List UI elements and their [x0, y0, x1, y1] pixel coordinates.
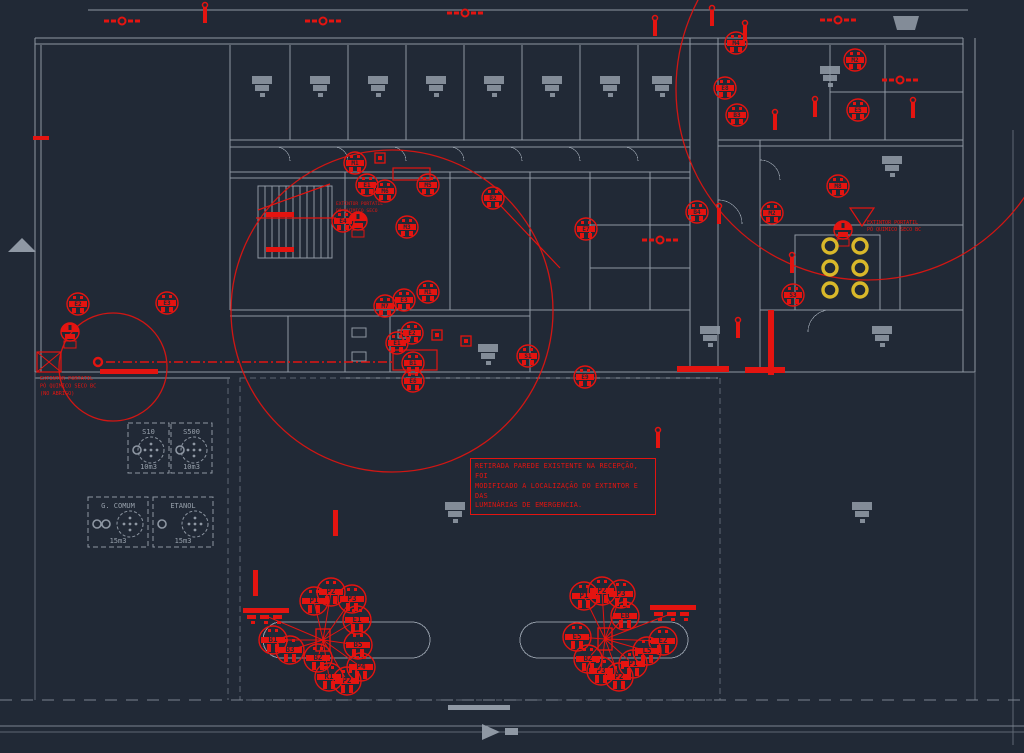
red-leader-line	[258, 184, 330, 210]
symbol-tag-label: E4	[339, 218, 347, 225]
revision-note-line: MODIFICADO A LOCALIZAÇÃO DO EXTINTOR E D…	[475, 482, 651, 502]
note-text-line: EXTINTOR PORTATIL	[867, 220, 918, 226]
symbol-tag-label: P2	[326, 587, 335, 596]
symbol-tag-label: P1	[628, 659, 638, 668]
note-text-line: PÓ QUIMICO SECO BC	[40, 382, 96, 389]
revision-note-line: LUMINÁRIAS DE EMERGENCIA.	[475, 501, 651, 511]
red-strip-mark	[100, 369, 158, 374]
hose-reel-icon	[94, 358, 102, 366]
symbol-tag-label: E5	[572, 632, 581, 641]
symbol-tag-label: B2	[313, 653, 322, 662]
pump-nozzle-tag: B2	[574, 645, 602, 673]
north-arrow-icon	[8, 238, 36, 252]
symbol-tag-label: M7	[381, 303, 389, 310]
gas-cylinder-icon	[823, 239, 837, 253]
tank-label: ETANOL	[170, 502, 195, 510]
symbol-tag-label: R1	[324, 672, 334, 681]
symbol-tag-label: E5	[854, 107, 862, 114]
symbol-tag-label: B3	[285, 645, 295, 654]
symbol-tag-label: E1	[352, 615, 362, 624]
emergency-light-symbol: S1	[517, 345, 539, 367]
red-strip-mark	[745, 367, 785, 373]
emergency-light-symbol: B3	[726, 104, 748, 126]
tank-volume-label: 10m3	[183, 463, 200, 471]
furniture-desk	[882, 156, 902, 177]
alarm-panel-dot	[435, 333, 439, 337]
pump-nozzle-tag: P1	[570, 582, 598, 610]
red-strip-mark	[253, 570, 258, 596]
emergency-light-symbol: M7	[374, 295, 396, 317]
symbol-tag-label: L5	[642, 646, 651, 655]
pipe-riser-icon	[911, 98, 916, 119]
red-strip-mark	[33, 136, 49, 140]
tank-fill-point	[158, 520, 166, 528]
tank-fill-point	[93, 520, 101, 528]
furniture-desk	[872, 326, 892, 347]
symbol-tag-label: B4	[693, 209, 701, 216]
fuel-tank-pad: G. COMUM15m3	[88, 497, 148, 547]
cad-viewport[interactable]: M1E1M6M5E4M3M1E3M7E2E1B1E6B2E7S1E9E2E3M4…	[0, 0, 1024, 753]
note-text-line: EXTINTOR PORTATIL	[40, 376, 93, 382]
symbol-tag-label: M4	[732, 40, 740, 47]
safety-overlay-layer: M1E1M6M5E4M3M1E3M7E2E1B1E6B2E7S1E9E2E3M4…	[33, 0, 1024, 695]
pipe-riser-icon	[710, 6, 715, 27]
emergency-light-symbol: M1	[417, 281, 439, 303]
symbol-tag-label: E6	[409, 378, 417, 385]
emergency-light-symbol: M4	[725, 32, 747, 54]
emergency-light-symbol: E7	[575, 218, 597, 240]
note-text-line: (NO ABRIGO)	[40, 391, 74, 397]
dispenser-icon	[650, 605, 696, 621]
emergency-light-symbol: M1	[344, 152, 366, 174]
emergency-light-symbol: E9	[574, 366, 596, 388]
symbol-tag-label: M1	[351, 160, 359, 167]
furniture-desk	[652, 76, 672, 97]
red-strip-mark	[768, 310, 774, 375]
symbol-tag-label: E7	[582, 226, 590, 233]
pipe-valve-icon	[447, 10, 483, 17]
pipe-riser-icon	[736, 318, 741, 339]
walls-layer	[35, 10, 975, 658]
symbol-tag-label: P2	[342, 676, 351, 685]
furniture-desk	[310, 76, 330, 97]
furniture-desk	[478, 344, 498, 365]
pipe-valve-icon	[642, 237, 678, 244]
symbol-tag-label: E8	[721, 85, 729, 92]
fire-extinguisher-symbol	[61, 323, 79, 348]
symbol-tag-label: B2	[489, 195, 497, 202]
fuel-tank-pad: S1010m3	[128, 423, 169, 473]
furniture-desk	[542, 76, 562, 97]
tank-fill-point	[176, 446, 184, 454]
pipe-riser-icon	[773, 110, 778, 131]
symbol-tag-label: M5	[424, 182, 432, 189]
symbol-tag-label: E3	[400, 297, 408, 304]
furniture-desk	[820, 66, 840, 87]
symbol-tag-label: P3	[616, 589, 626, 598]
symbol-tag-label: E9	[581, 374, 589, 381]
emergency-light-symbol: B4	[686, 201, 708, 223]
fuel-tank-pad: S50010m3	[171, 423, 212, 473]
symbol-tag-label: B5	[353, 640, 362, 649]
symbol-tag-label: EB	[620, 611, 630, 620]
tank-label: G. COMUM	[101, 502, 135, 510]
gas-cylinder-icon	[823, 261, 837, 275]
symbol-tag-label: M1	[424, 289, 432, 296]
symbol-tag-label: P2	[614, 672, 623, 681]
red-strip-mark	[266, 212, 294, 217]
extinguisher-note-top-right: EXTINTOR PORTATILPÓ QUIMICO SECO BC	[867, 220, 921, 233]
gas-cylinder-icon	[853, 283, 867, 297]
symbol-tag-label: M2	[768, 210, 776, 217]
pipe-valve-icon	[882, 77, 918, 84]
furniture-desk	[484, 76, 504, 97]
symbol-tag-label: P3	[596, 666, 606, 675]
alarm-panel-dot	[464, 339, 468, 343]
pump-nozzle-tag: B1	[259, 626, 287, 654]
alarm-panel-dot	[378, 156, 382, 160]
furniture-desk	[445, 502, 465, 523]
symbol-tag-label: E1	[393, 340, 401, 347]
tank-volume-label: 10m3	[140, 463, 157, 471]
furniture-counter	[893, 16, 919, 30]
pipe-valve-icon	[104, 18, 140, 25]
furniture-desk	[852, 502, 872, 523]
furniture-desk	[368, 76, 388, 97]
red-strip-mark	[333, 510, 338, 536]
tank-label: S500	[183, 428, 200, 436]
emergency-light-symbol: M8	[827, 175, 849, 197]
symbol-tag-label: S3	[789, 292, 797, 299]
symbol-tag-label: E2	[408, 330, 416, 337]
extinguisher-note-stairs: EXTINTOR PORTATILPÓ QUIMICO SECO	[336, 201, 383, 214]
tank-fill-point	[102, 520, 110, 528]
pipe-valve-icon	[305, 18, 341, 25]
pipe-valve-icon	[820, 17, 856, 24]
emergency-light-symbol: E5	[847, 99, 869, 121]
furniture-desk	[700, 326, 720, 347]
gas-cylinder-icon	[853, 239, 867, 253]
tank-fill-point	[133, 446, 141, 454]
symbol-tag-label: E1	[363, 182, 371, 189]
floorplan-drawing: M1E1M6M5E4M3M1E3M7E2E1B1E6B2E7S1E9E2E3M4…	[0, 0, 1024, 753]
revision-note-line: RETIRADA PAREDE EXISTENTE NA RECEPÇÃO, F…	[475, 462, 651, 482]
extinguisher-note-left: EXTINTOR PORTATILPÓ QUIMICO SECO BC(NO A…	[40, 376, 96, 397]
symbol-tag-label: P4	[356, 662, 366, 671]
gas-cylinder-icon	[823, 283, 837, 297]
symbol-tag-label: M2	[851, 57, 859, 64]
emergency-light-symbol: M2	[761, 202, 783, 224]
emergency-light-symbol: M2	[844, 49, 866, 71]
gas-cylinder-icon	[853, 261, 867, 275]
symbol-tag-label: M6	[381, 188, 389, 195]
emergency-light-symbol: E6	[402, 370, 424, 392]
pipe-riser-icon	[653, 16, 658, 37]
emergency-light-symbol: E1	[386, 332, 408, 354]
furniture-desk	[600, 76, 620, 97]
symbol-tag-label: B1	[268, 635, 278, 644]
furniture-layer	[252, 16, 919, 523]
emergency-light-symbol: E8	[714, 77, 736, 99]
emergency-light-symbol: B2	[482, 187, 504, 209]
revision-note-box: RETIRADA PAREDE EXISTENTE NA RECEPÇÃO, F…	[470, 458, 656, 515]
emergency-light-symbol: S3	[782, 284, 804, 306]
symbol-tag-label: M8	[834, 183, 842, 190]
symbol-tag-label: S1	[524, 353, 532, 360]
symbol-tag-label: P2	[597, 586, 606, 595]
pipe-riser-icon	[203, 3, 208, 24]
red-strip-mark	[677, 366, 729, 372]
symbol-tag-label: P3	[347, 594, 357, 603]
symbol-tag-label: B1	[409, 360, 417, 367]
note-text-line: PÓ QUIMICO SECO BC	[867, 226, 921, 233]
pipe-riser-icon	[656, 428, 661, 449]
tank-label: S10	[142, 428, 155, 436]
pipe-riser-icon	[813, 97, 818, 118]
fuel-tank-pad: ETANOL15m3	[153, 497, 213, 547]
furniture-desk	[426, 76, 446, 97]
pump-nozzle-tag: P3	[338, 585, 366, 613]
emergency-light-symbol: M5	[417, 174, 439, 196]
symbol-tag-label: B2	[583, 654, 592, 663]
symbol-tag-label: E3	[163, 300, 171, 307]
pipe-riser-icon	[790, 253, 795, 274]
tank-volume-label: 15m3	[175, 537, 192, 545]
fire-extinguisher-symbol	[349, 212, 367, 237]
furniture-desk	[252, 76, 272, 97]
pump-nozzle-tag: E5	[563, 623, 591, 651]
emergency-light-symbol: B1	[402, 352, 424, 374]
tank-volume-label: 15m3	[110, 537, 127, 545]
note-text-line: PÓ QUIMICO SECO	[336, 207, 378, 214]
pipe-riser-icon	[717, 204, 722, 225]
symbol-tag-label: B3	[733, 112, 741, 119]
red-strip-mark	[266, 247, 294, 252]
pump-nozzle-tag: EB	[611, 602, 639, 630]
emergency-light-symbol: E2	[67, 293, 89, 315]
note-text-line: EXTINTOR PORTATIL	[336, 201, 383, 207]
symbol-tag-label: E2	[74, 301, 82, 308]
symbol-tag-label: M3	[403, 224, 411, 231]
emergency-light-symbol: M6	[374, 180, 396, 202]
emergency-light-symbol: M3	[396, 216, 418, 238]
emergency-light-symbol: E3	[156, 292, 178, 314]
